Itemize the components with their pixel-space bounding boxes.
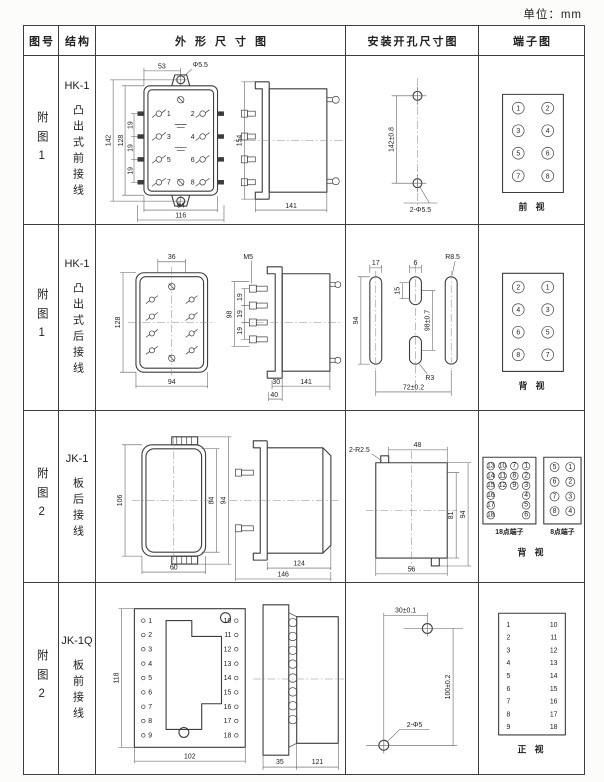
terminal-number: 17 <box>224 718 232 725</box>
header-mounting: 安装开孔尺寸图 <box>346 26 479 56</box>
terminal-number: 4 <box>148 661 152 668</box>
terminal-number: 4 <box>568 508 572 515</box>
dim-label: 154 <box>236 135 243 147</box>
relay-front-view: 1 2 3 4 5 6 7 8 142 128 1 <box>106 62 224 222</box>
header-terminal: 端子图 <box>479 26 584 56</box>
dim-label: 124 <box>293 561 305 568</box>
mounting-cell-row2: 17 6 R8.5 15 94 98±0.7 R3 72±0.2 <box>346 225 479 411</box>
header-fig-no: 图号 <box>24 26 59 56</box>
dim-label: 2-R2.5 <box>349 447 370 454</box>
dim-label: 142 <box>106 135 113 147</box>
dim-label: 17 <box>372 260 380 267</box>
dim-label: 116 <box>175 213 186 220</box>
structure-row1: HK-1 凸出式前接线 <box>59 56 96 225</box>
hk1-rear-outline-drawing: 36 128 94 <box>96 225 345 410</box>
outline-cell-row2: 36 128 94 <box>96 225 346 411</box>
terminal-number: 17 <box>487 502 495 509</box>
terminal-number: 13 <box>487 462 495 469</box>
terminal-number: 11 <box>550 635 557 642</box>
dim-label: 94 <box>168 379 176 386</box>
dim-label: 19 <box>128 144 135 152</box>
terminal-number: 1 <box>568 464 572 471</box>
terminal-number: 18 <box>224 733 232 740</box>
terminal-number: 14 <box>487 472 495 479</box>
terminal-number: 5 <box>516 151 520 158</box>
dim-label: 19 <box>128 121 135 129</box>
terminal-number: 7 <box>167 180 171 187</box>
terminal-number: 2 <box>148 632 152 639</box>
terminal-number: 12 <box>499 482 507 489</box>
terminal-number: 13 <box>224 661 232 668</box>
fig-no-row3: 附图2 <box>24 411 59 583</box>
terminal-number: 7 <box>506 699 510 706</box>
terminal-number: 14 <box>550 673 558 680</box>
terminal-number: 15 <box>550 686 558 693</box>
hk1-rear-mounting-drawing: 17 6 R8.5 15 94 98±0.7 R3 72±0.2 <box>346 225 478 410</box>
terminal-number: 4 <box>506 660 510 667</box>
terminal-number: 8 <box>506 711 510 718</box>
terminal-block-label: 18点端子 <box>495 527 523 536</box>
terminal-number: 16 <box>224 704 232 711</box>
terminal-number: 1 <box>167 111 171 118</box>
dim-label: 30±0.1 <box>395 608 416 615</box>
fig-no-row4: 附图2 <box>24 583 59 774</box>
outline-cell-row1: 1 2 3 4 5 6 7 8 142 128 1 <box>96 56 346 225</box>
terminal-number: 18 <box>550 724 558 731</box>
terminal-number: 9 <box>506 724 510 731</box>
terminal-number: 3 <box>506 647 510 654</box>
dim-label: 94 <box>460 510 467 518</box>
terminal-number: 5 <box>506 673 510 680</box>
terminal-number: 2 <box>506 635 510 642</box>
view-caption: 背 视 <box>518 380 547 391</box>
terminal-number: 3 <box>568 493 572 500</box>
dim-label: 2-Φ5 <box>407 722 423 729</box>
terminal-number: 2 <box>524 472 528 479</box>
terminal-number: 8 <box>512 472 516 479</box>
dim-label: 72±0.2 <box>403 384 424 391</box>
dim-label: 106 <box>117 495 124 507</box>
terminal-number: 7 <box>148 704 152 711</box>
terminal-number: 11 <box>224 632 231 639</box>
dim-label: R3 <box>425 375 434 382</box>
terminal-cell-row1: 1 2 3 4 5 6 7 8 前 视 <box>479 56 584 225</box>
terminal-number: 7 <box>546 352 550 359</box>
hk1-front-mounting-drawing: 142±0.8 2-Φ5.5 <box>346 56 478 224</box>
dim-label: 84 <box>209 496 216 504</box>
terminal-number: 16 <box>487 492 495 499</box>
dim-label: 141 <box>285 203 297 210</box>
terminal-number: 6 <box>553 479 557 486</box>
terminal-number: 6 <box>191 157 195 164</box>
terminal-number: 9 <box>512 482 516 489</box>
jk1-mounting-drawing: 2-R2.5 48 81 94 56 <box>346 411 478 582</box>
terminal-number: 6 <box>148 690 152 697</box>
dim-label: 118 <box>114 672 121 683</box>
header-structure: 结构 <box>59 26 96 56</box>
model-label: HK-1 <box>64 80 89 92</box>
terminal-number: 4 <box>191 134 195 141</box>
dim-label: M5 <box>243 254 253 261</box>
terminal-number: 8 <box>191 180 195 187</box>
structure-row2: HK-1 凸出式后接线 <box>59 225 96 411</box>
terminal-number: 8 <box>546 173 550 180</box>
hk1-front-outline-drawing: 1 2 3 4 5 6 7 8 142 128 1 <box>96 56 345 224</box>
jk1q-outline-drawing: 1 2 3 4 5 6 7 8 9 10 11 12 13 14 15 16 1… <box>96 583 345 774</box>
relay-rear-view: 36 128 94 <box>115 254 215 388</box>
terminal-number: 2 <box>568 479 572 486</box>
spec-table: 图号 结构 外形尺寸图 安装开孔尺寸图 端子图 附图1 HK-1 凸出式前接线 <box>23 25 585 775</box>
fig-no-label: 附图2 <box>35 467 47 526</box>
terminal-number: 2 <box>191 111 195 118</box>
dim-label: 142±0.8 <box>389 127 396 152</box>
terminal-number: 3 <box>167 134 171 141</box>
relay-side-view: M5 98 19 19 19 30 40 141 <box>226 254 340 401</box>
terminal-number: 10 <box>550 622 558 629</box>
structure-label: 凸出式前接线 <box>72 104 83 200</box>
view-caption: 背 视 <box>518 546 547 557</box>
dim-label: R8.5 <box>445 254 460 261</box>
fig-no-label: 附图1 <box>35 111 47 170</box>
jk1-outline-drawing: 106 84 94 60 124 <box>96 411 345 582</box>
mounting-cell-row3: 2-R2.5 48 81 94 56 <box>346 411 479 583</box>
terminal-number: 1 <box>148 618 152 625</box>
dim-label: 128 <box>118 135 125 147</box>
dim-label: 53 <box>158 63 166 70</box>
outline-cell-row3: 106 84 94 60 124 <box>96 411 346 583</box>
terminal-number: 4 <box>524 492 528 499</box>
terminal-number: 1 <box>524 462 528 469</box>
dim-label: 146 <box>277 572 289 579</box>
model-label: JK-1 <box>66 453 89 465</box>
fig-no-row2: 附图1 <box>24 225 59 411</box>
dim-label: 35 <box>276 759 284 766</box>
terminal-number: 3 <box>148 646 152 653</box>
structure-label: 板后接线 <box>72 477 83 541</box>
terminal-number: 14 <box>224 675 232 682</box>
dim-label: 19 <box>237 293 244 301</box>
terminal-number: 8 <box>516 352 520 359</box>
terminal-diagram-front-view-jk1q: 1 2 3 4 5 6 7 8 9 10 11 12 13 14 15 16 1… <box>479 583 584 774</box>
terminal-number: 10 <box>499 462 507 469</box>
dim-label: 98 <box>226 311 233 319</box>
terminal-number: 7 <box>516 173 520 180</box>
dim-label: 60 <box>170 565 178 572</box>
dim-label: 98±0.7 <box>424 310 431 331</box>
terminal-number: 13 <box>550 660 558 667</box>
relay-side-view: 35 121 <box>253 605 344 770</box>
dim-label: 121 <box>312 759 324 766</box>
terminal-number: 5 <box>524 502 528 509</box>
terminal-screws <box>152 110 210 187</box>
header-outline: 外形尺寸图 <box>96 26 346 56</box>
terminal-number: 16 <box>550 699 558 706</box>
terminal-number: 6 <box>546 151 550 158</box>
terminal-number: 2 <box>546 106 550 113</box>
dim-label: 128 <box>115 317 122 329</box>
mounting-cell-row4: 30±0.1 100±0.2 2-Φ5 <box>346 583 479 774</box>
fig-no-row1: 附图1 <box>24 56 59 225</box>
terminal-cell-row3: 13 14 15 16 17 18 10 11 12 7 8 9 1 2 3 4… <box>479 411 584 583</box>
model-label: HK-1 <box>64 258 89 270</box>
terminal-number: 1 <box>516 106 520 113</box>
dim-label: 102 <box>184 754 196 761</box>
relay-side-view: 154 141 <box>233 82 342 212</box>
terminal-number: 1 <box>506 622 510 629</box>
terminal-number: 6 <box>524 512 528 519</box>
terminal-number: 9 <box>148 733 152 740</box>
page: { "unit_label": "单位：mm", "headers": { "f… <box>0 0 604 782</box>
dim-label: 2-Φ5.5 <box>410 207 431 214</box>
dim-label: 15 <box>395 287 402 295</box>
dim-label: 30 <box>272 379 280 386</box>
terminal-number: 5 <box>167 157 171 164</box>
terminal-number: 10 <box>224 618 232 625</box>
fig-no-label: 附图2 <box>35 649 47 708</box>
dim-label: 6 <box>414 260 418 267</box>
dim-label: 94 <box>220 496 227 504</box>
dim-label: Φ5.5 <box>193 62 208 69</box>
terminal-number: 1 <box>546 285 550 292</box>
terminal-number: 12 <box>550 647 558 654</box>
structure-label: 板前接线 <box>72 659 83 723</box>
terminal-number: 6 <box>516 330 520 337</box>
terminal-number: 3 <box>516 128 520 135</box>
terminal-number: 3 <box>546 307 550 314</box>
dim-label: 100±0.2 <box>445 674 452 699</box>
terminal-diagram-18pt-8pt: 13 14 15 16 17 18 10 11 12 7 8 9 1 2 3 4… <box>479 411 584 582</box>
model-label: JK-1Q <box>61 635 92 647</box>
terminal-number: 7 <box>553 493 557 500</box>
terminal-number: 15 <box>487 482 495 489</box>
dim-label: 19 <box>237 327 244 335</box>
terminal-number: 18 <box>487 512 495 519</box>
dim-label: 94 <box>177 203 185 210</box>
relay-side-view: 124 146 <box>229 441 340 581</box>
terminal-number: 4 <box>546 128 550 135</box>
terminal-number: 17 <box>550 711 558 718</box>
terminal-cell-row4: 1 2 3 4 5 6 7 8 9 10 11 12 13 14 15 16 1… <box>479 583 584 774</box>
terminal-diagram-front-view: 1 2 3 4 5 6 7 8 前 视 <box>479 56 584 224</box>
dim-label: 19 <box>237 310 244 318</box>
terminal-number: 6 <box>506 686 510 693</box>
jk1q-mounting-drawing: 30±0.1 100±0.2 2-Φ5 <box>346 583 478 774</box>
outline-cell-row4: 1 2 3 4 5 6 7 8 9 10 11 12 13 14 15 16 1… <box>96 583 346 774</box>
dim-label: 36 <box>168 254 176 261</box>
fig-no-label: 附图1 <box>35 288 47 347</box>
dim-label: 48 <box>414 442 422 449</box>
terminal-number: 5 <box>546 330 550 337</box>
terminal-diagram-back-view: 2 1 4 3 6 5 8 7 背 视 <box>479 225 584 410</box>
terminal-number: 12 <box>224 646 232 653</box>
dim-label: 141 <box>300 379 312 386</box>
terminal-number: 4 <box>516 307 520 314</box>
terminal-number: 8 <box>553 508 557 515</box>
dim-label: 81 <box>448 511 455 519</box>
structure-row3: JK-1 板后接线 <box>59 411 96 583</box>
terminal-number: 15 <box>224 690 232 697</box>
terminal-number: 7 <box>512 462 516 469</box>
dim-label: 40 <box>270 392 278 399</box>
unit-label: 单位：mm <box>523 6 582 22</box>
dim-label: 94 <box>353 316 360 324</box>
terminal-block-label: 8点端子 <box>550 527 575 536</box>
terminal-number: 5 <box>553 464 557 471</box>
view-caption: 前 视 <box>518 201 547 212</box>
mounting-cell-row1: 142±0.8 2-Φ5.5 <box>346 56 479 225</box>
structure-label: 凸出式后接线 <box>72 282 83 378</box>
terminal-number: 8 <box>148 718 152 725</box>
view-caption: 正 视 <box>518 744 547 755</box>
terminal-number: 11 <box>499 472 506 479</box>
terminal-number: 5 <box>148 675 152 682</box>
terminal-number: 2 <box>516 285 520 292</box>
structure-row4: JK-1Q 板前接线 <box>59 583 96 774</box>
relay-front-view: 1 2 3 4 5 6 7 8 9 10 11 12 13 14 15 16 1… <box>114 609 246 763</box>
dim-label: 56 <box>408 566 416 573</box>
terminal-number: 3 <box>524 482 528 489</box>
dim-label: 19 <box>128 167 135 175</box>
relay-front-view: 106 84 94 60 <box>117 437 231 574</box>
terminal-cell-row2: 2 1 4 3 6 5 8 7 背 视 <box>479 225 584 411</box>
